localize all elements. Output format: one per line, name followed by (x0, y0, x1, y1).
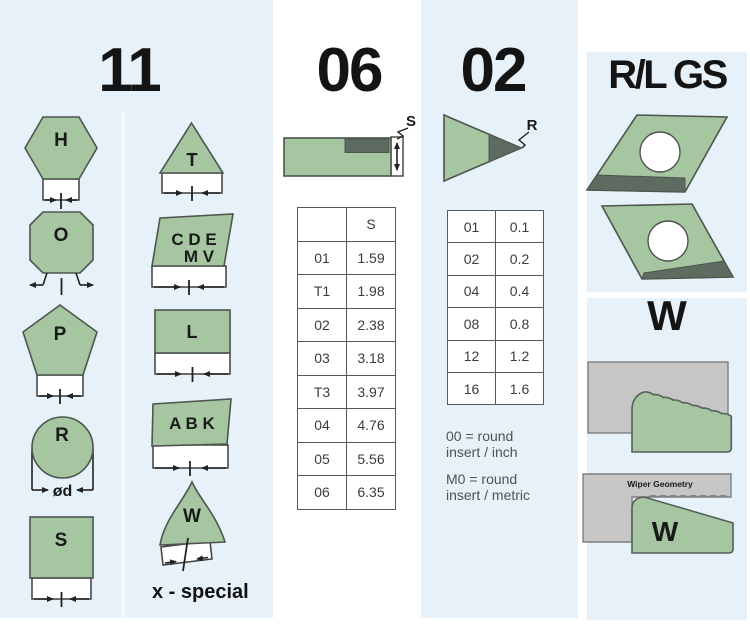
shape-label-s: S (55, 530, 68, 551)
shape-label-mv: M V (184, 247, 215, 266)
table-cell: 1.98 (347, 275, 396, 309)
table-cell: 0.1 (496, 211, 544, 243)
table-cell: 16 (448, 372, 496, 404)
rlgs-title: R/L GS (587, 55, 747, 95)
table-cell: 01 (298, 241, 347, 275)
triangle-t-shape: T (152, 118, 238, 210)
wiper-wedge-label: W (652, 516, 679, 547)
pentagon-p-shape: P (18, 300, 112, 408)
shape-label-abk: A B K (169, 414, 215, 433)
table-cell: 0.4 (496, 275, 544, 307)
table-cell: 08 (448, 308, 496, 340)
radius-column-title: 02 (433, 40, 553, 102)
shape-label-r: R (55, 425, 69, 446)
square-s-shape: S (20, 514, 110, 611)
insert-side-view: S (280, 106, 425, 184)
table-row: 040.4 (448, 275, 544, 307)
table-row: T33.97 (298, 375, 396, 409)
table-cell: 05 (298, 442, 347, 476)
rectangle-l-shape: L (150, 306, 238, 390)
table-row: T11.98 (298, 275, 396, 309)
table-cell: 4.76 (347, 409, 396, 443)
thickness-table: S011.59T11.98022.38033.18T33.97044.76055… (297, 207, 396, 510)
insert-designation-chart: 11 H O P ød R (0, 0, 750, 638)
diamond-insert-left-hand (580, 195, 748, 290)
table-cell: 6.35 (347, 476, 396, 510)
table-cell: 02 (448, 243, 496, 275)
table-row: 011.59 (298, 241, 396, 275)
wiper-geometry-label: Wiper Geometry (627, 479, 693, 489)
table-cell: 1.2 (496, 340, 544, 372)
hexagon-h-shape: H (18, 112, 112, 214)
table-cell: 1.59 (347, 241, 396, 275)
table-cell: 0.2 (496, 243, 544, 275)
table-cell: 02 (298, 308, 347, 342)
table-cell: 5.56 (347, 442, 396, 476)
table-row: 010.1 (448, 211, 544, 243)
table-row: 121.2 (448, 340, 544, 372)
shape-label-p: P (54, 324, 67, 345)
table-row: 022.38 (298, 308, 396, 342)
table-cell: S (347, 208, 396, 242)
table-cell: 03 (298, 342, 347, 376)
round-r-shape: ød R (22, 413, 110, 508)
insert-corner-view: R (438, 105, 550, 191)
table-cell: 0.8 (496, 308, 544, 340)
rhombic-cdemv-shape: C D E M V (146, 212, 242, 304)
shape-label-o: O (54, 225, 69, 246)
table-row: 066.35 (298, 476, 396, 510)
table-cell: 04 (298, 409, 347, 443)
shape-label-t: T (187, 150, 198, 170)
thickness-column-title: 06 (289, 40, 409, 102)
table-row: 055.56 (298, 442, 396, 476)
table-row: 044.76 (298, 409, 396, 443)
table-cell (298, 208, 347, 242)
shape-label-h: H (54, 130, 68, 151)
standard-insert-surface-diagram (582, 355, 744, 457)
special-shape-note: x - special (152, 581, 267, 604)
table-cell: 12 (448, 340, 496, 372)
wiper-title: W (587, 295, 747, 337)
table-row: 033.18 (298, 342, 396, 376)
table-cell: 3.18 (347, 342, 396, 376)
shape-label-l: L (187, 322, 198, 342)
table-row: S (298, 208, 396, 242)
radius-dim-label: R (527, 117, 538, 134)
table-cell: 3.97 (347, 375, 396, 409)
table-cell: 2.38 (347, 308, 396, 342)
table-cell: 01 (448, 211, 496, 243)
diamond-insert-right-hand (580, 108, 748, 200)
column-divider (121, 112, 125, 618)
panel-wiper (587, 298, 747, 620)
table-row: 161.6 (448, 372, 544, 404)
parallelogram-abk-shape: A B K (146, 396, 242, 488)
shape-column-title: 11 (69, 40, 189, 102)
table-row: 080.8 (448, 308, 544, 340)
shape-label-w: W (183, 506, 201, 527)
table-cell: 1.6 (496, 372, 544, 404)
octagon-o-shape: O (20, 207, 110, 302)
diameter-dim-label: ød (53, 483, 73, 500)
table-cell: T3 (298, 375, 347, 409)
table-row: 020.2 (448, 243, 544, 275)
round-insert-metric-note: M0 = round insert / metric (446, 472, 566, 504)
round-insert-inch-note: 00 = round insert / inch (446, 429, 566, 461)
table-cell: 04 (448, 275, 496, 307)
trigon-w-shape: W (152, 476, 238, 582)
radius-table: 010.1020.2040.4080.8121.2161.6 (447, 210, 544, 405)
thickness-dim-label: S (406, 113, 416, 130)
table-cell: T1 (298, 275, 347, 309)
table-cell: 06 (298, 476, 347, 510)
wiper-insert-surface-diagram: Wiper Geometry W (578, 470, 746, 564)
